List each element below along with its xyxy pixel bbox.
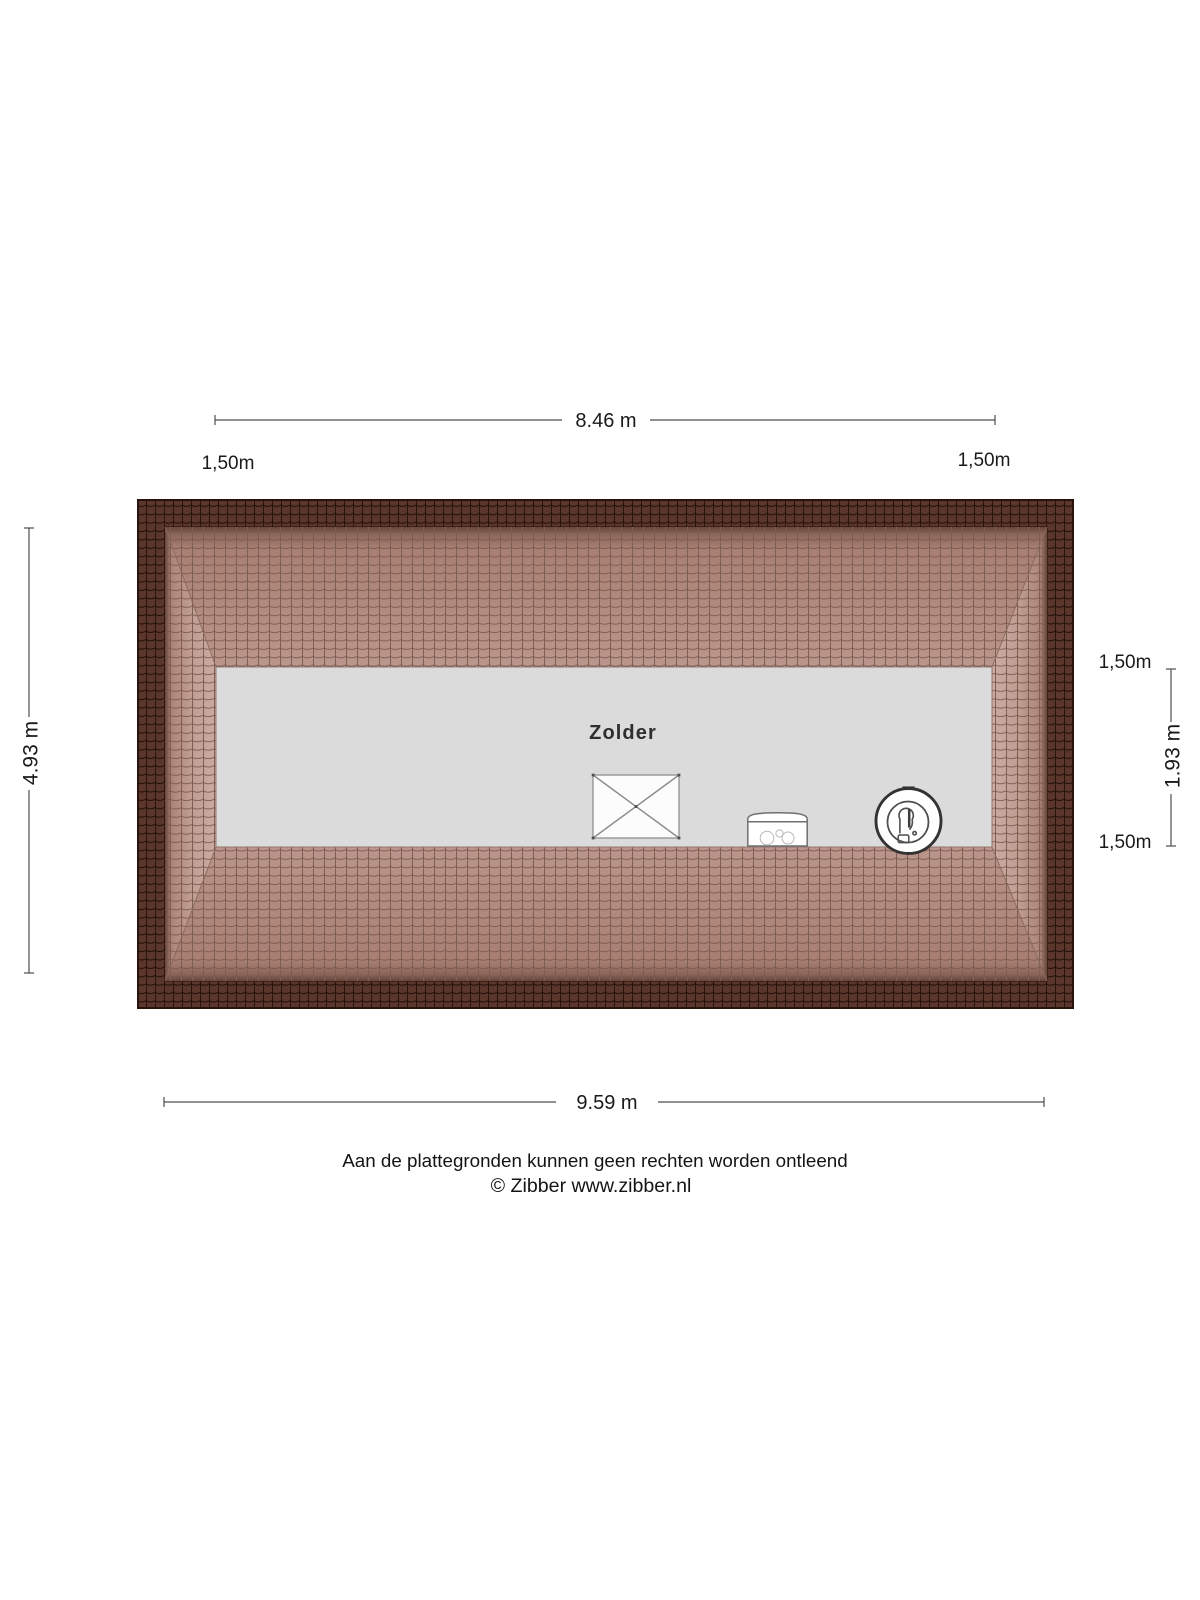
svg-text:1,50m: 1,50m (1099, 652, 1152, 673)
svg-text:1,50m: 1,50m (1099, 832, 1152, 853)
svg-text:© Zibber www.zibber.nl: © Zibber www.zibber.nl (491, 1175, 692, 1197)
svg-text:1,50m: 1,50m (202, 453, 255, 474)
svg-text:1.93 m: 1.93 m (1162, 724, 1185, 788)
svg-text:Zolder: Zolder (589, 722, 657, 744)
svg-text:4.93 m: 4.93 m (20, 721, 43, 785)
svg-text:8.46 m: 8.46 m (575, 410, 636, 432)
svg-text:1,50m: 1,50m (958, 450, 1011, 471)
svg-text:9.59 m: 9.59 m (576, 1092, 637, 1114)
svg-text:Aan de plattegronden kunnen ge: Aan de plattegronden kunnen geen rechten… (342, 1150, 847, 1171)
